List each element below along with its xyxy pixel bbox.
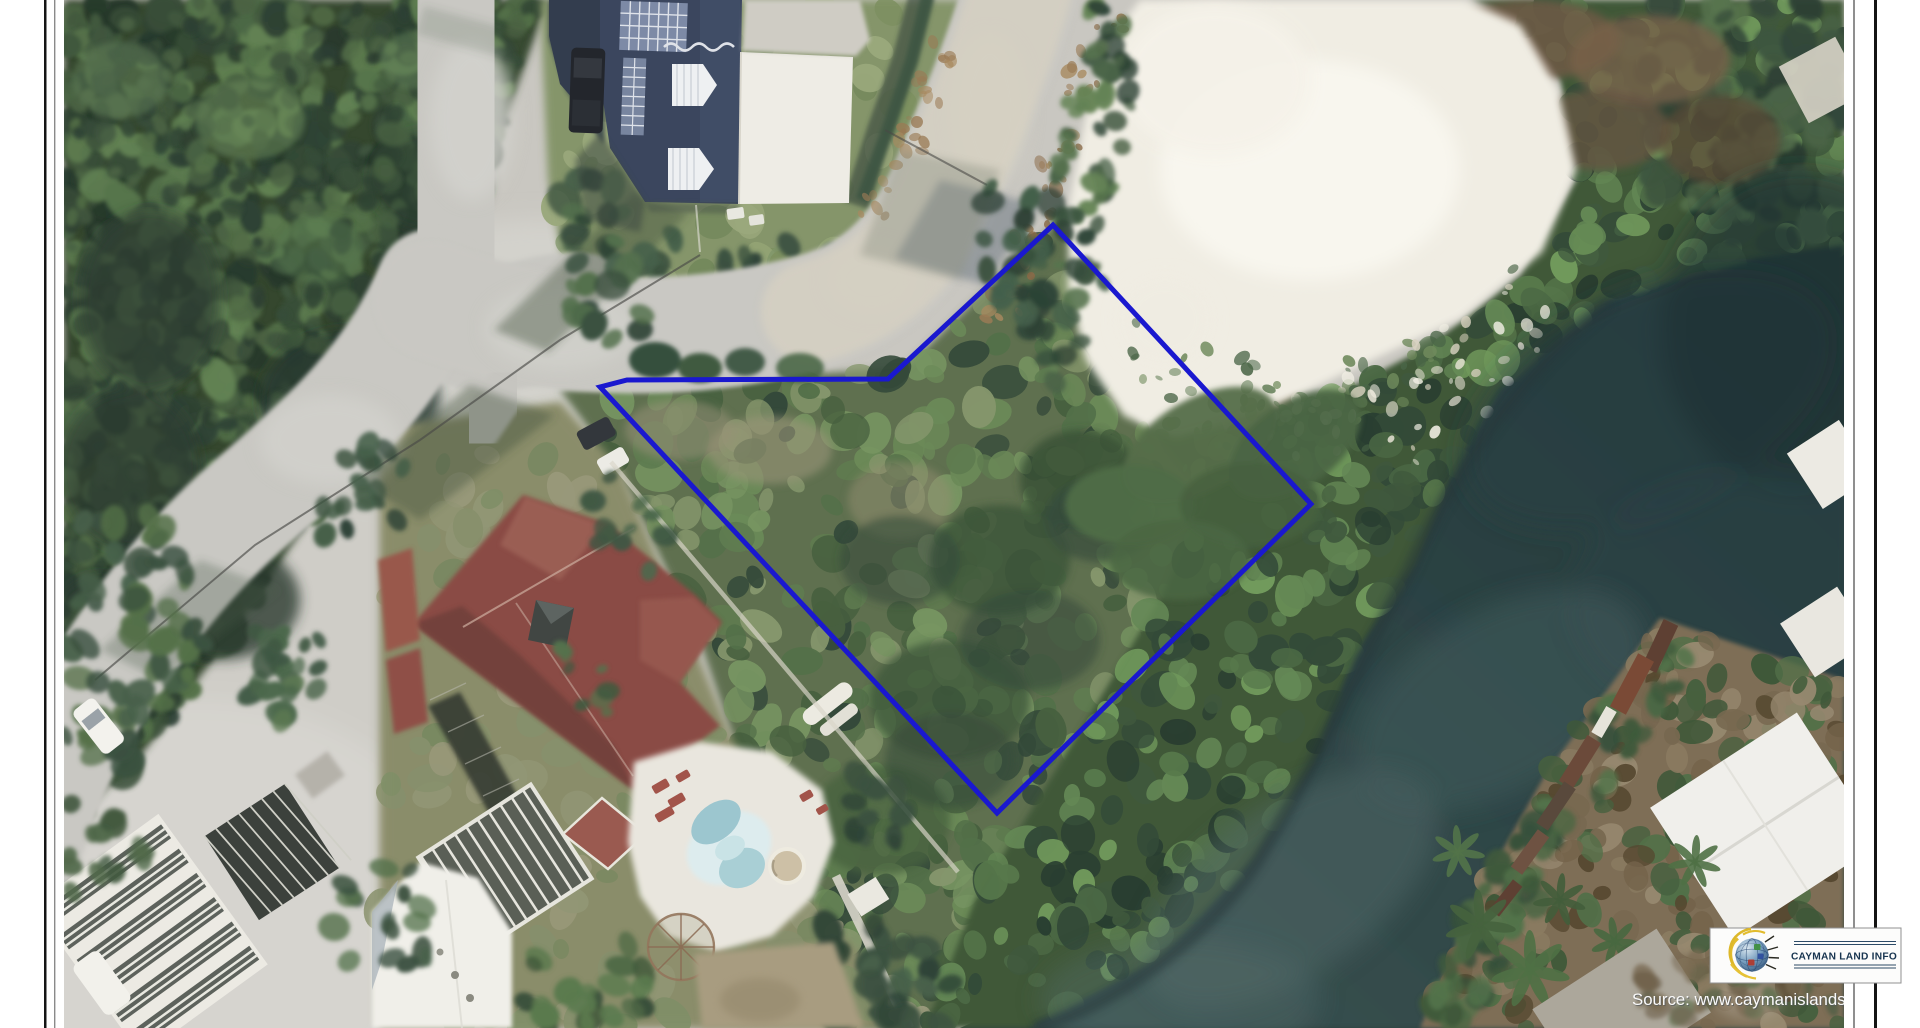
svg-text:CAYMAN LAND INFO: CAYMAN LAND INFO [1791, 952, 1897, 963]
